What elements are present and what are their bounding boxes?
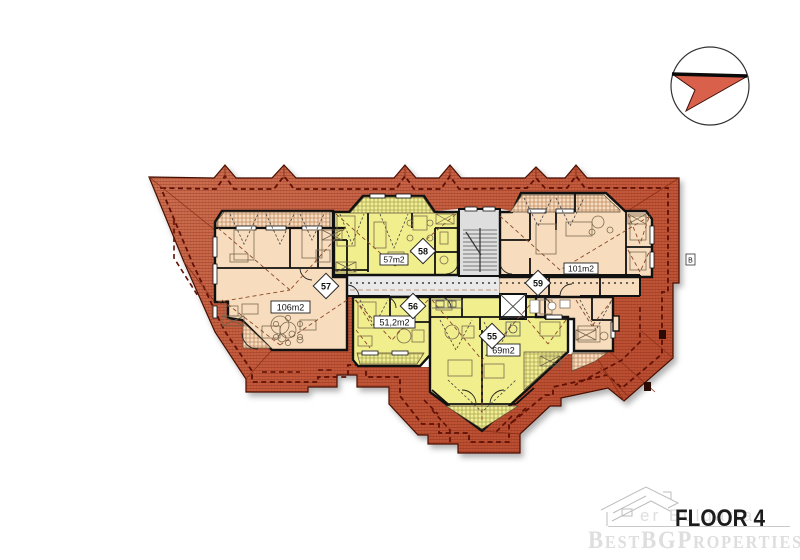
svg-text:57: 57 [321,282,331,292]
svg-text:B: B [688,258,693,265]
svg-text:58: 58 [418,247,428,257]
svg-text:57m2: 57m2 [383,255,405,265]
svg-text:BestBGProperties: BestBGProperties [588,527,800,554]
svg-text:101m2: 101m2 [568,264,594,274]
svg-text:106m2: 106m2 [277,303,305,313]
svg-text:51,2m2: 51,2m2 [379,318,409,328]
svg-text:56: 56 [408,302,418,312]
svg-text:55: 55 [487,332,497,342]
svg-text:69m2: 69m2 [492,346,515,356]
svg-text:59: 59 [533,279,543,289]
